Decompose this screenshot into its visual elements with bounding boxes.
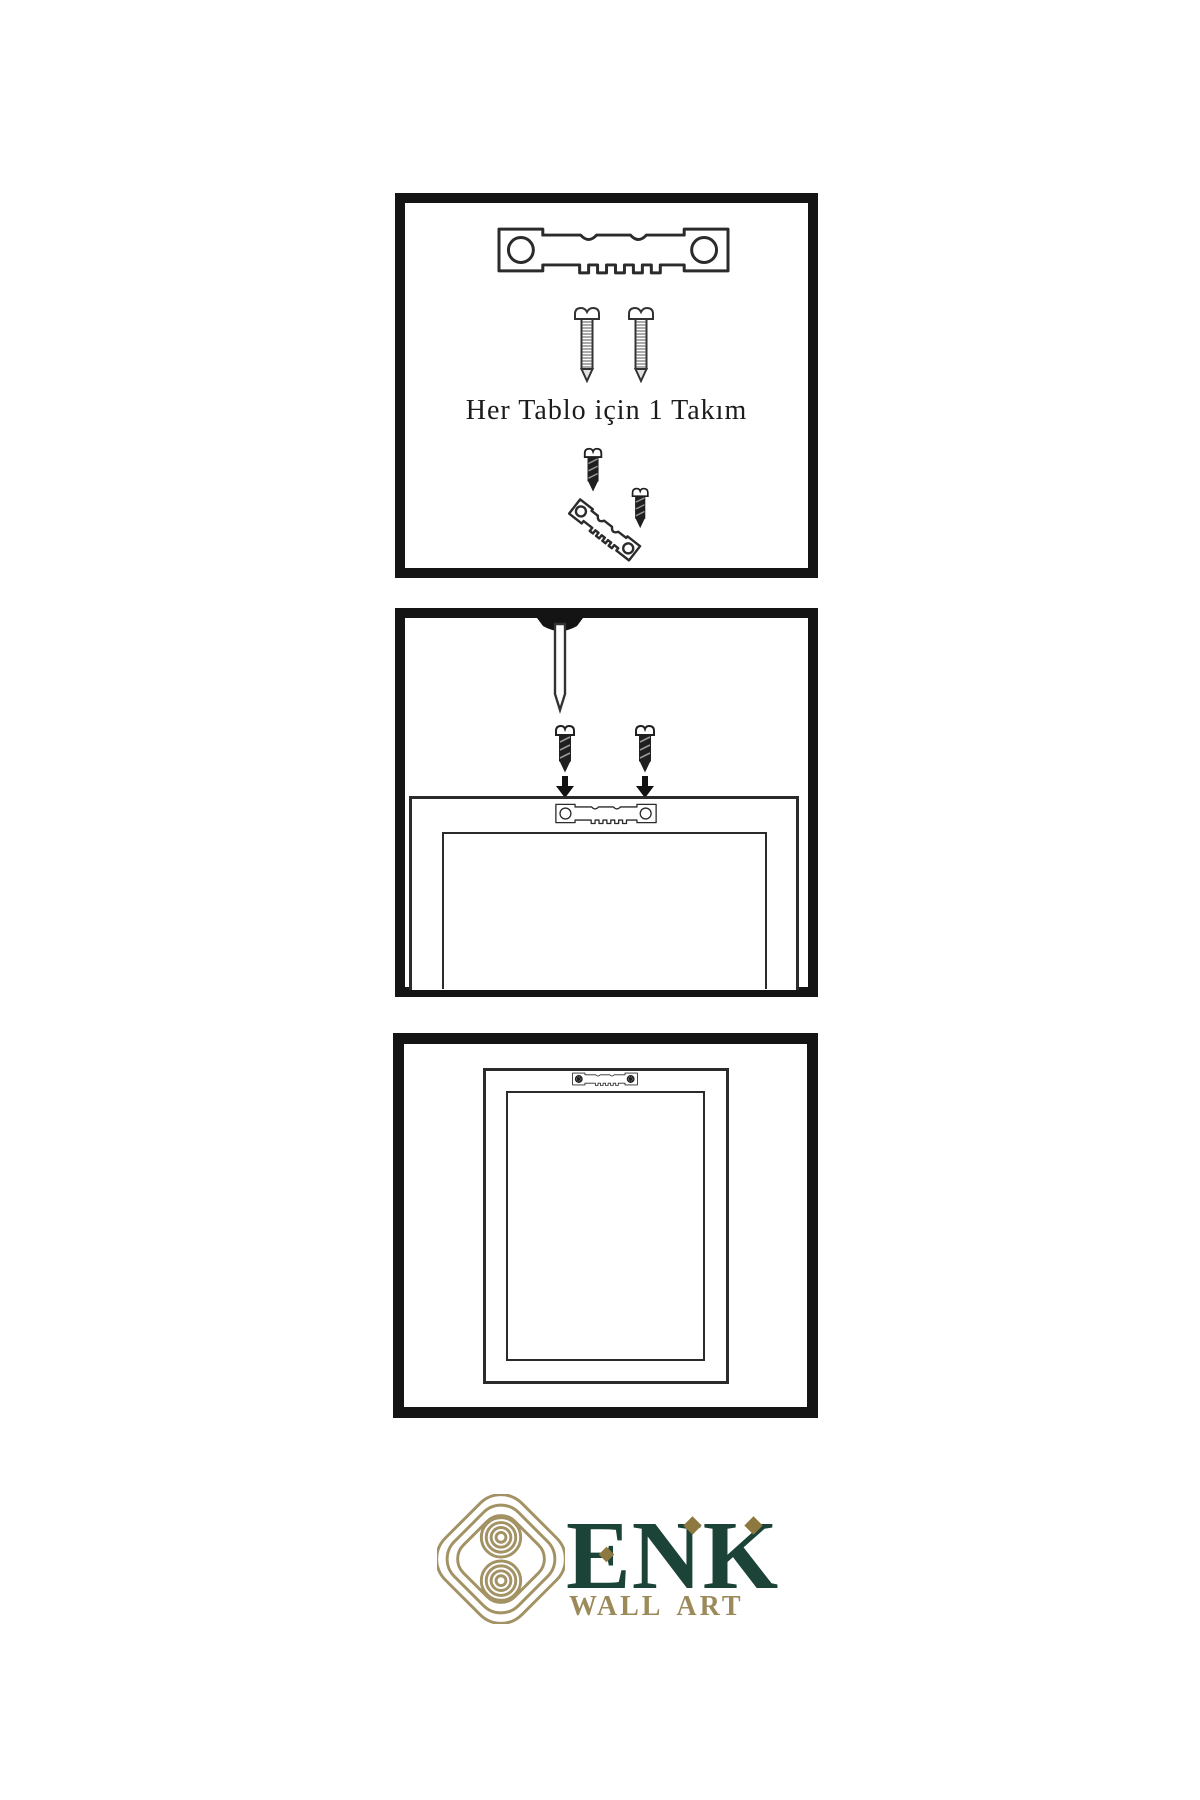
step-3-hanging-panel [393,1033,818,1418]
screw-icon [571,305,603,383]
down-arrow-icon [636,776,654,798]
nail-icon [537,618,583,714]
dark-screw-with-arrow [553,723,577,799]
brand-subtitle: WALL ART [569,1593,744,1621]
dark-screw-icon [556,726,574,773]
knot-logo-icon [437,1494,565,1624]
mounted-sawtooth-hanger-icon [572,1071,638,1087]
screws-into-hanger-group [568,446,668,564]
frame-back-inner-edge [442,832,767,989]
down-arrow-icon [556,776,574,798]
instruction-sheet: Her Tablo için 1 Takım [0,0,1200,1800]
screw-icon [625,305,657,383]
step-1-kit-panel: Her Tablo için 1 Takım [395,193,818,578]
frame-back-inner-edge [506,1091,705,1361]
dark-screw-icon [585,449,602,492]
dark-screw-with-arrow [633,723,657,799]
step-2-mounting-panel [395,608,818,997]
dark-screw-icon [633,489,648,529]
kit-caption: Her Tablo için 1 Takım [405,395,808,427]
angled-sawtooth-hanger-icon [568,499,640,561]
sawtooth-hanger-icon [555,801,657,826]
sawtooth-hanger-icon [497,222,730,278]
dark-screw-icon [636,726,654,773]
